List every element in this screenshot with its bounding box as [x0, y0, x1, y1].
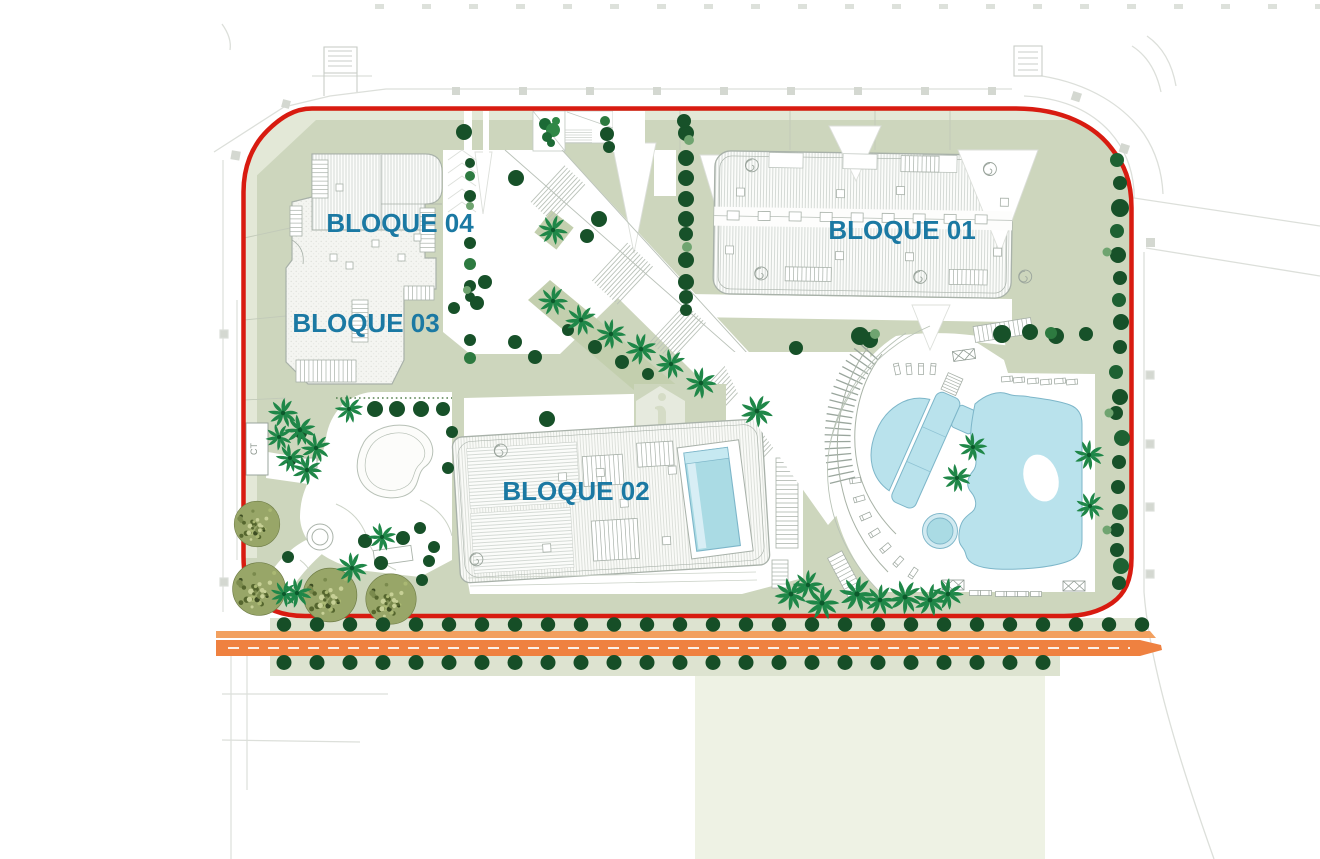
svg-text:BLOQUE 02: BLOQUE 02 — [502, 476, 649, 506]
svg-text:BLOQUE 03: BLOQUE 03 — [292, 308, 439, 338]
svg-text:CT: CT — [249, 443, 259, 455]
svg-text:BLOQUE 01: BLOQUE 01 — [828, 215, 975, 245]
svg-text:BLOQUE 04: BLOQUE 04 — [326, 208, 474, 238]
